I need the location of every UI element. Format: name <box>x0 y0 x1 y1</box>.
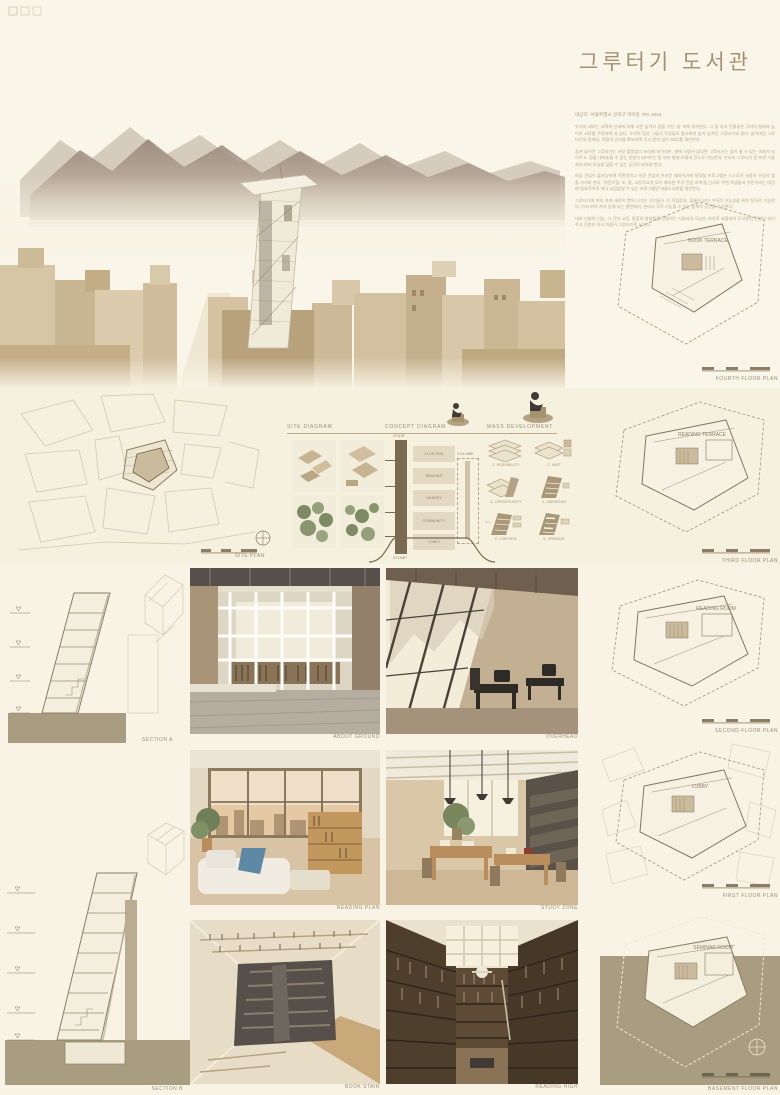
volume-label: VOLUME <box>457 452 474 456</box>
site-diagram-header: SITE DIAGRAM <box>287 424 332 430</box>
intro-paragraph: 우리의 대지는 서쪽의 산세에 의해 다른 높이의 땅을 가진 '섬' 속에 위… <box>575 124 775 144</box>
svg-text:BOOK TERRACE: BOOK TERRACE <box>688 238 728 244</box>
first-floor-caption: FIRST FLOOR PLAN <box>690 893 778 899</box>
section-a-drawing <box>8 575 173 748</box>
basement-floor-plan-drawing: SEMINAR ROOM <box>605 905 777 1081</box>
level-community: COMMUNITY <box>413 512 455 530</box>
basement-caption: BASEMENT FLOOR PLAN <box>690 1086 778 1092</box>
third-floor-plan-drawing: READING TERRACE <box>610 398 772 550</box>
site-plan-drawing <box>15 392 280 560</box>
presentation-board: 그루터기 도서관 대상지: 서울특별시 강북구 미아동 791-1504 우리의… <box>0 0 780 1095</box>
first-floor-scalebar <box>690 883 778 891</box>
level-studying: STUDYING <box>413 446 455 462</box>
svg-text:LOBBY: LOBBY <box>692 784 709 790</box>
mass-step: 6. OPENING <box>531 510 577 541</box>
intro-paragraph: 마당 진입이 불가능하며 직관적이고 쉬운 진입이 어려운 대지이기에 설정될 … <box>575 173 775 193</box>
svg-text:SEMINAR ROOM: SEMINAR ROOM <box>693 945 733 951</box>
svg-text:READING TERRACE: READING TERRACE <box>678 432 727 438</box>
site-plan-caption: SITE PLAN <box>180 553 265 559</box>
ground-curve <box>369 532 495 564</box>
exterior-perspective-render <box>0 105 565 390</box>
render-reading-plan: READING PLAN <box>190 750 380 911</box>
basement-scalebar <box>690 1072 778 1080</box>
fourth-floor-plan-drawing: BOOK TERRACE <box>612 196 772 368</box>
mass-step: 2. UNIT <box>531 436 577 467</box>
stump-reader-vignette <box>443 398 473 428</box>
svg-text:READING ROOM: READING ROOM <box>696 606 736 612</box>
poster-title: 그루터기 도서관 <box>579 46 752 76</box>
second-floor-scalebar <box>690 718 778 726</box>
render-study-zone: STUDY ZONE <box>386 750 578 911</box>
stump-label: STUMP <box>393 556 407 560</box>
mass-step: 3. OPPORTUNITY <box>483 473 529 504</box>
mass-development-grid: 1. POSSIBILITY 2. UNIT 3. OPPORTUNITY 4.… <box>483 436 577 541</box>
third-floor-scalebar <box>690 548 778 556</box>
level-library: LIBRARY <box>413 490 455 506</box>
render-book-stair: BOOK STAIR <box>190 920 380 1090</box>
mass-step: 4. VARIATION <box>531 473 577 504</box>
third-floor-caption: THIRD FLOOR PLAN <box>690 558 778 564</box>
concept-diagram: STAIR STUDYING READING LIBRARY COMMUNITY… <box>383 436 481 562</box>
first-floor-plan-drawing: LOBBY <box>600 742 778 892</box>
fourth-floor-caption: FOURTH FLOOR PLAN <box>690 376 778 382</box>
second-floor-caption: SECOND FLOOR PLAN <box>690 728 778 734</box>
stair-label: STAIR <box>393 434 405 438</box>
stump-reader-vignette <box>518 386 558 426</box>
level-reading: READING <box>413 468 455 484</box>
site-address: 대상지: 서울특별시 강북구 미아동 791-1504 <box>575 112 775 118</box>
diagram-divider <box>287 433 557 434</box>
mass-step: 1. POSSIBILITY <box>483 436 529 467</box>
render-reading-high: READING HIGH <box>386 920 578 1090</box>
corner-marks <box>8 6 44 20</box>
second-floor-plan-drawing: READING ROOM <box>604 576 774 722</box>
mass-step: 5. CONTROL <box>483 510 529 541</box>
section-b-drawing <box>5 845 190 1085</box>
intro-paragraph: 숨겨 남겨진 그루터기는 자칫 볼품없고 초라해 보이지만, 곁에 사람이 있다… <box>575 149 775 169</box>
concept-diagram-header: CONCEPT DIAGRAM <box>385 424 446 430</box>
section-a-caption: SECTION A <box>95 737 173 743</box>
section-b-caption: SECTION B <box>105 1086 183 1092</box>
render-about-ground: ABOUT GROUND <box>190 568 380 740</box>
render-overhead: OVERHEAD <box>386 568 578 740</box>
fourth-floor-scalebar <box>690 366 778 374</box>
